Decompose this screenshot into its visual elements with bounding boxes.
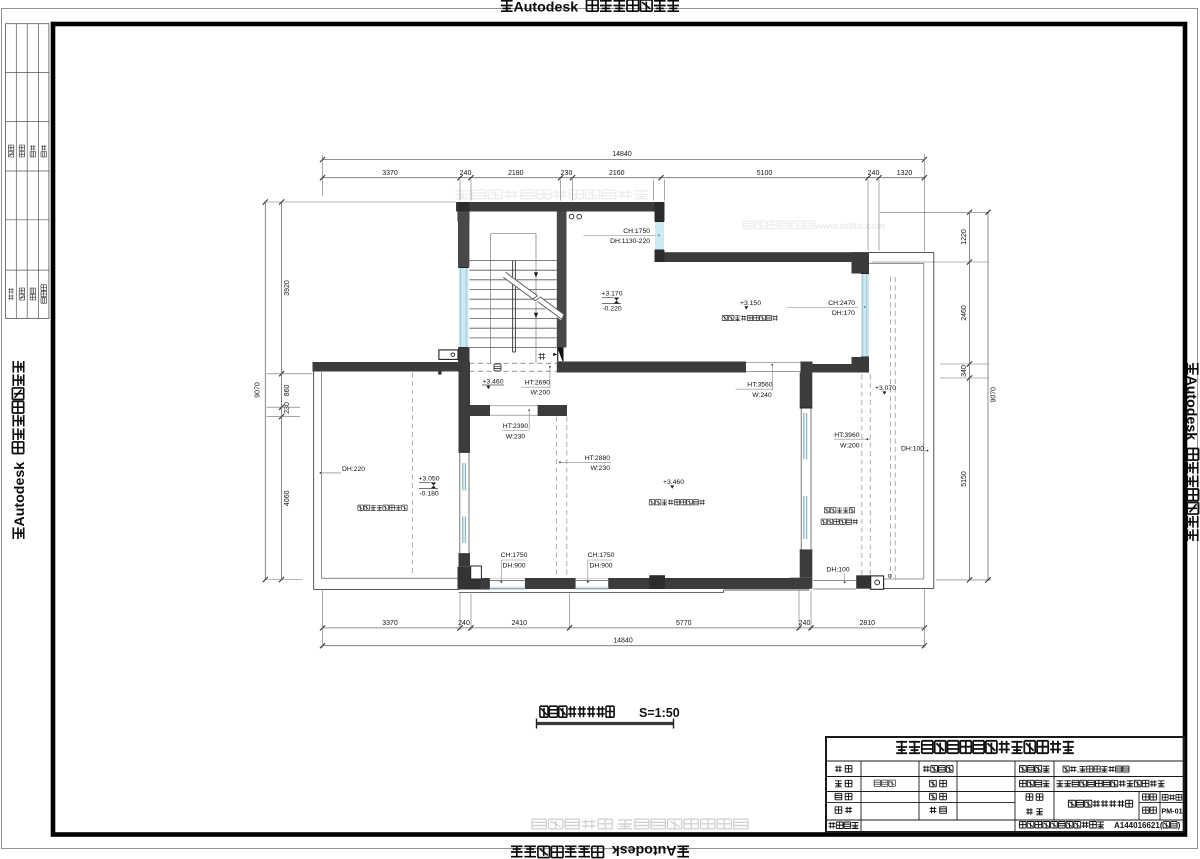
svg-text:HT:3560: HT:3560 — [747, 382, 773, 389]
svg-text:2160: 2160 — [609, 170, 625, 177]
svg-text:240: 240 — [460, 170, 472, 177]
svg-text:CH:1750: CH:1750 — [501, 552, 528, 559]
svg-text:DH:900: DH:900 — [503, 562, 526, 569]
svg-text:860: 860 — [284, 384, 291, 396]
svg-text:www.to8to.com: www.to8to.com — [814, 221, 885, 232]
svg-text:2810: 2810 — [860, 620, 876, 627]
svg-text:2460: 2460 — [961, 305, 968, 321]
svg-text:Autodesk: Autodesk — [514, 0, 579, 16]
svg-text:W:240: W:240 — [752, 392, 772, 399]
svg-text:-0.180: -0.180 — [419, 491, 438, 498]
svg-text:3370: 3370 — [382, 620, 398, 627]
svg-text:HT:2880: HT:2880 — [585, 455, 611, 462]
svg-text:340: 340 — [961, 365, 968, 377]
svg-text:.: . — [1077, 765, 1079, 774]
svg-text:DH:100: DH:100 — [901, 446, 924, 453]
svg-text:3370: 3370 — [382, 170, 398, 177]
svg-text:+3.070: +3.070 — [875, 385, 896, 392]
svg-text:+3.050: +3.050 — [419, 476, 440, 483]
svg-text:A144016621(: A144016621( — [1114, 821, 1163, 830]
svg-text:+3.150: +3.150 — [740, 300, 761, 307]
svg-text:CH:1750: CH:1750 — [588, 552, 615, 559]
svg-text:+3.460: +3.460 — [663, 479, 684, 486]
svg-text:DH:220: DH:220 — [342, 466, 365, 473]
svg-text:-0.220: -0.220 — [602, 305, 621, 312]
svg-text:DH:170: DH:170 — [832, 310, 855, 317]
svg-text:14840: 14840 — [613, 637, 633, 644]
svg-text:+3.170: +3.170 — [602, 290, 623, 297]
svg-text:5770: 5770 — [676, 620, 692, 627]
svg-text:9070: 9070 — [255, 382, 262, 398]
svg-text:Autodesk: Autodesk — [1183, 376, 1199, 441]
svg-text:HT:3960: HT:3960 — [834, 432, 860, 439]
svg-text:PM-01: PM-01 — [1161, 807, 1182, 816]
svg-text:5100: 5100 — [757, 170, 773, 177]
svg-text:230: 230 — [561, 170, 573, 177]
svg-text:2180: 2180 — [508, 170, 524, 177]
svg-text:14840: 14840 — [612, 151, 632, 158]
svg-text:Autodesk: Autodesk — [612, 842, 677, 858]
svg-text:1320: 1320 — [897, 170, 913, 177]
svg-text:DH:100: DH:100 — [827, 567, 850, 574]
svg-text:5150: 5150 — [961, 471, 968, 487]
svg-text:W:200: W:200 — [840, 442, 860, 449]
svg-text:240: 240 — [799, 620, 811, 627]
svg-text:HT:2390: HT:2390 — [503, 423, 529, 430]
svg-text:): ) — [1178, 821, 1181, 830]
svg-text:1220: 1220 — [961, 229, 968, 245]
svg-text:W:230: W:230 — [506, 434, 526, 441]
svg-text:CH:1750: CH:1750 — [623, 228, 650, 235]
svg-text:S=1:50: S=1:50 — [639, 706, 680, 720]
svg-text:240: 240 — [868, 170, 880, 177]
svg-text:2410: 2410 — [512, 620, 528, 627]
svg-text:W:230: W:230 — [591, 465, 611, 472]
svg-text:9070: 9070 — [991, 387, 998, 403]
svg-text:230: 230 — [284, 402, 291, 414]
svg-text:Autodesk: Autodesk — [12, 462, 28, 527]
svg-text:DH:900: DH:900 — [590, 562, 613, 569]
svg-text:HT:2690: HT:2690 — [525, 380, 551, 387]
svg-text:DH:1130-220: DH:1130-220 — [610, 238, 650, 245]
svg-text:W:200: W:200 — [531, 389, 551, 396]
svg-text:4060: 4060 — [284, 490, 291, 506]
svg-text:+3.460: +3.460 — [483, 378, 504, 385]
svg-text:3920: 3920 — [284, 280, 291, 296]
svg-text:CH:2470: CH:2470 — [828, 300, 855, 307]
